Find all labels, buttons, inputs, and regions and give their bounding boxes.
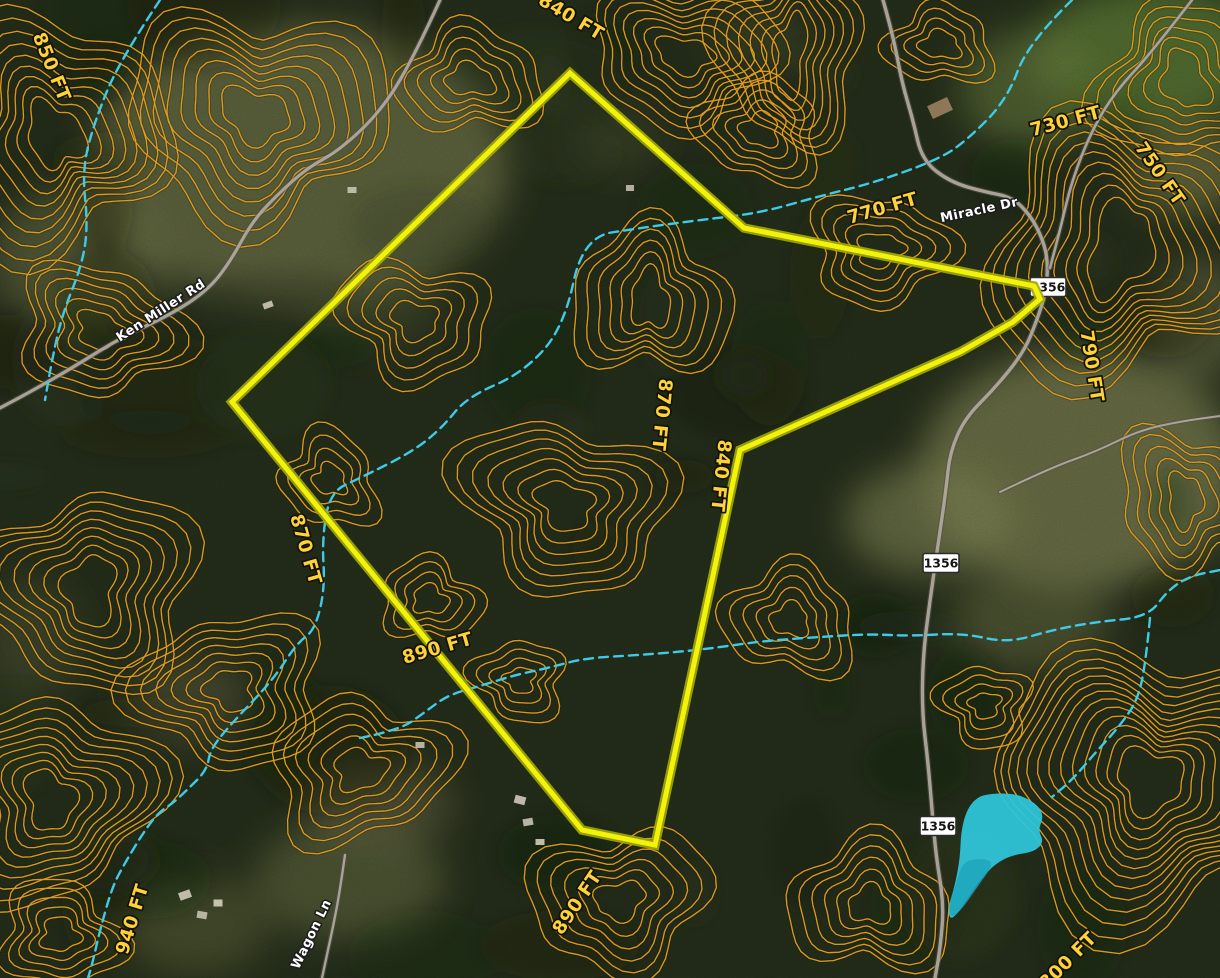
map-layers: 135613561356850 FT840 FT730 FT750 FT770 … <box>0 0 1220 978</box>
route-shield: 1356 <box>923 554 959 573</box>
svg-text:1356: 1356 <box>924 556 959 571</box>
svg-text:1356: 1356 <box>921 819 956 834</box>
topo-map[interactable]: 135613561356850 FT840 FT730 FT750 FT770 … <box>0 0 1220 978</box>
route-shield: 1356 <box>920 817 956 836</box>
